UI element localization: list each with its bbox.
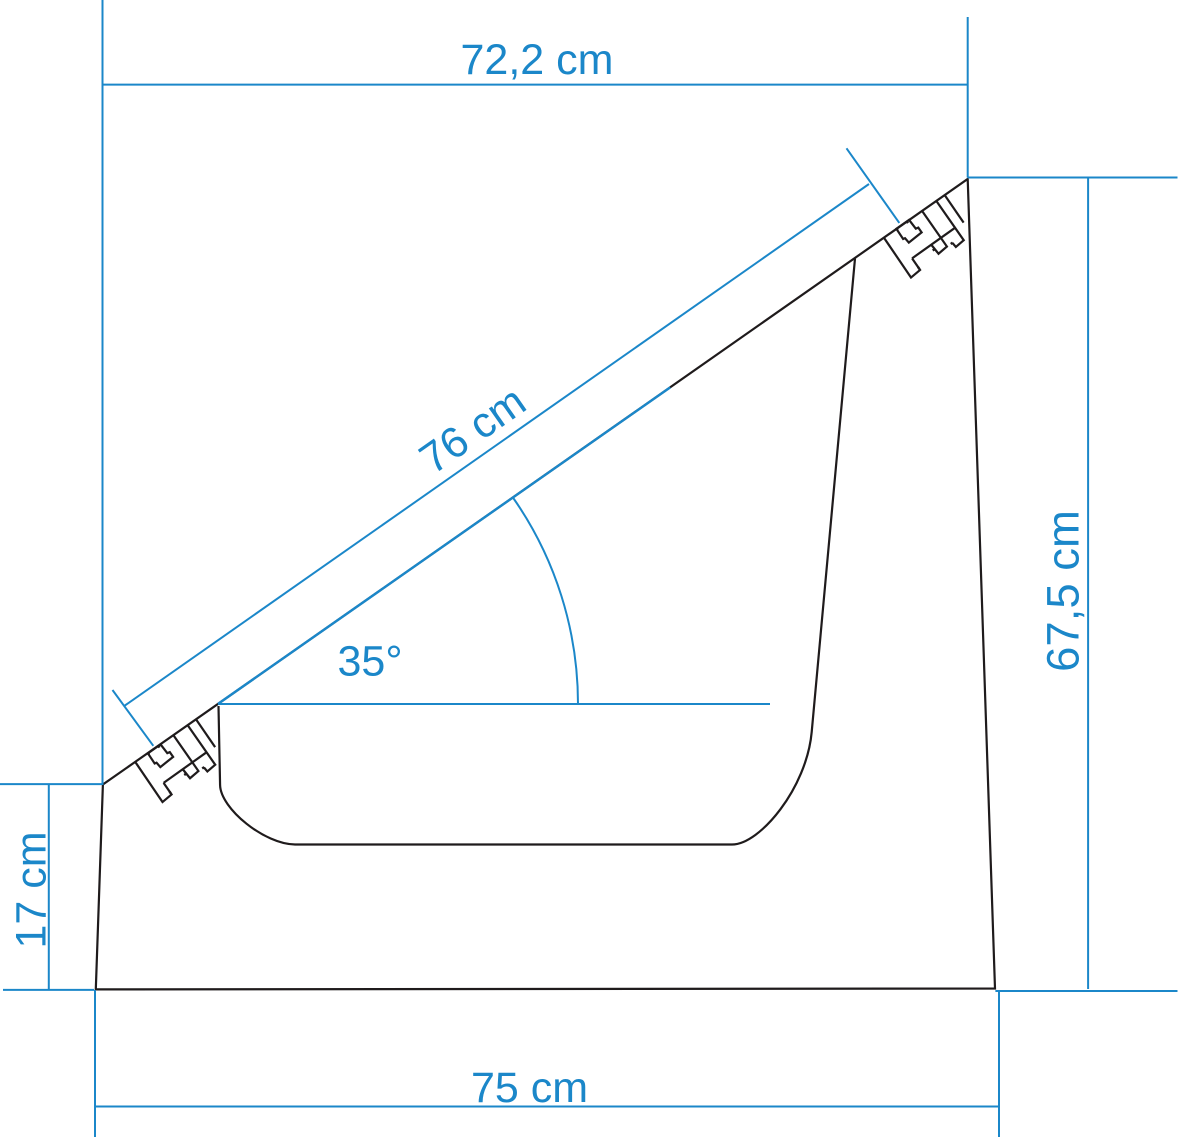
svg-text:67,5 cm: 67,5 cm <box>1038 510 1089 672</box>
svg-text:75 cm: 75 cm <box>471 1064 588 1112</box>
svg-text:35°: 35° <box>337 638 402 686</box>
svg-text:17 cm: 17 cm <box>8 831 56 948</box>
svg-text:72,2 cm: 72,2 cm <box>461 36 614 84</box>
